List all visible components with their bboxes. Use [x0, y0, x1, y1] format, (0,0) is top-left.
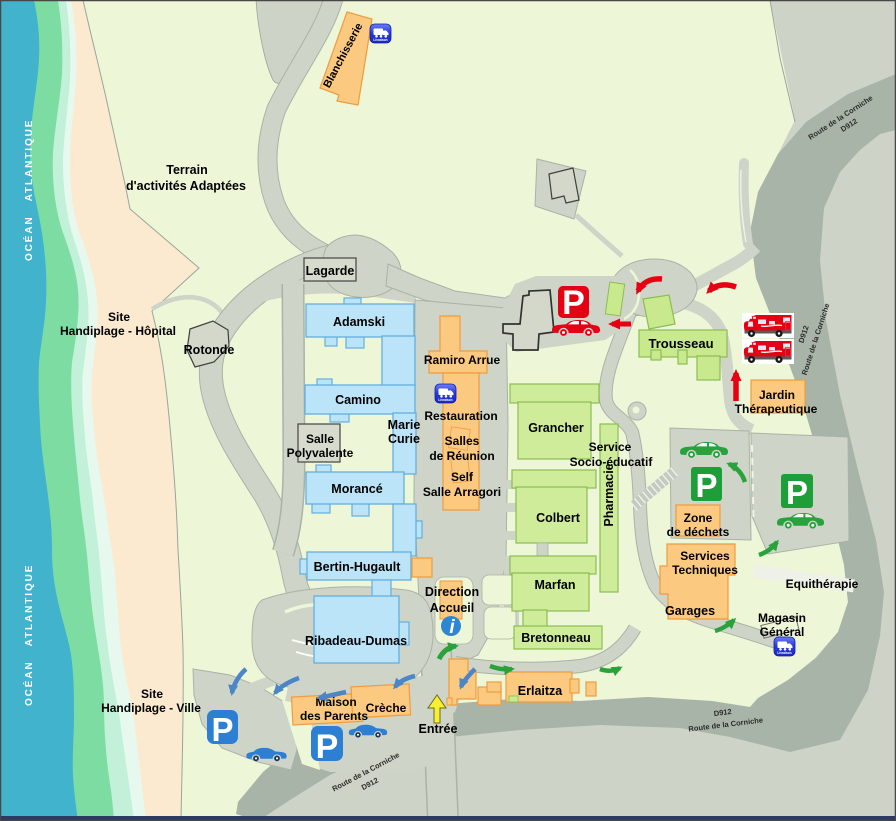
svg-text:Morancé: Morancé [331, 482, 382, 496]
svg-text:Salle: Salle [306, 432, 334, 446]
svg-text:Site: Site [141, 687, 163, 701]
svg-text:de Réunion: de Réunion [429, 449, 494, 463]
svg-text:Polyvalente: Polyvalente [287, 446, 354, 460]
svg-text:Handiplage - Ville: Handiplage - Ville [101, 701, 201, 715]
svg-text:OCÉAN ATLANTIQUE: OCÉAN ATLANTIQUE [22, 564, 35, 706]
svg-text:Lagarde: Lagarde [306, 264, 355, 278]
svg-text:Adamski: Adamski [333, 315, 385, 329]
svg-text:Entrée: Entrée [419, 722, 458, 736]
svg-text:P: P [211, 711, 233, 748]
svg-text:P: P [562, 284, 585, 322]
svg-text:i: i [449, 617, 455, 638]
svg-text:Camino: Camino [335, 393, 381, 407]
svg-text:Ribadeau-Dumas: Ribadeau-Dumas [305, 634, 407, 648]
svg-text:Techniques: Techniques [672, 563, 738, 577]
svg-text:Grancher: Grancher [528, 421, 584, 435]
svg-text:d'activités Adaptées: d'activités Adaptées [126, 179, 246, 193]
svg-text:Trousseau: Trousseau [648, 336, 713, 351]
svg-text:Garages: Garages [665, 604, 715, 618]
svg-text:Accueil: Accueil [430, 601, 474, 615]
svg-text:P: P [786, 474, 808, 511]
svg-text:Direction: Direction [425, 585, 479, 599]
svg-text:OCÉAN ATLANTIQUE: OCÉAN ATLANTIQUE [22, 119, 35, 261]
svg-text:Services: Services [680, 549, 730, 563]
svg-text:Pharmacie: Pharmacie [602, 463, 616, 526]
svg-text:Thérapeutique: Thérapeutique [735, 402, 818, 416]
svg-text:Bretonneau: Bretonneau [521, 631, 590, 645]
svg-text:Crèche: Crèche [366, 701, 407, 715]
svg-text:Rotonde: Rotonde [184, 343, 235, 357]
svg-text:Marie: Marie [388, 418, 421, 432]
svg-text:Colbert: Colbert [536, 511, 581, 525]
svg-text:Equithérapie: Equithérapie [786, 577, 859, 591]
svg-text:des Parents: des Parents [300, 709, 368, 723]
svg-text:Socio-éducatif: Socio-éducatif [570, 455, 654, 469]
svg-text:Site: Site [108, 310, 130, 324]
svg-text:Salle Arragori: Salle Arragori [423, 485, 501, 499]
svg-text:Handiplage - Hôpital: Handiplage - Hôpital [60, 324, 176, 338]
svg-text:Curie: Curie [388, 432, 420, 446]
svg-text:Salles: Salles [445, 434, 480, 448]
svg-text:P: P [316, 728, 339, 766]
svg-text:Self: Self [451, 470, 474, 484]
svg-text:Restauration: Restauration [424, 409, 497, 423]
svg-text:Zone: Zone [684, 511, 713, 525]
svg-text:Magasin: Magasin [758, 611, 806, 625]
svg-text:Erlaitza: Erlaitza [518, 684, 564, 698]
svg-text:Ramiro Arrue: Ramiro Arrue [424, 353, 501, 367]
svg-text:Bertin-Hugault: Bertin-Hugault [314, 560, 402, 574]
svg-text:P: P [695, 467, 717, 504]
svg-text:de déchets: de déchets [667, 525, 730, 539]
svg-text:Marfan: Marfan [535, 578, 576, 592]
svg-text:Jardin: Jardin [759, 388, 795, 402]
svg-text:Service: Service [589, 440, 632, 454]
svg-text:Terrain: Terrain [166, 163, 207, 177]
